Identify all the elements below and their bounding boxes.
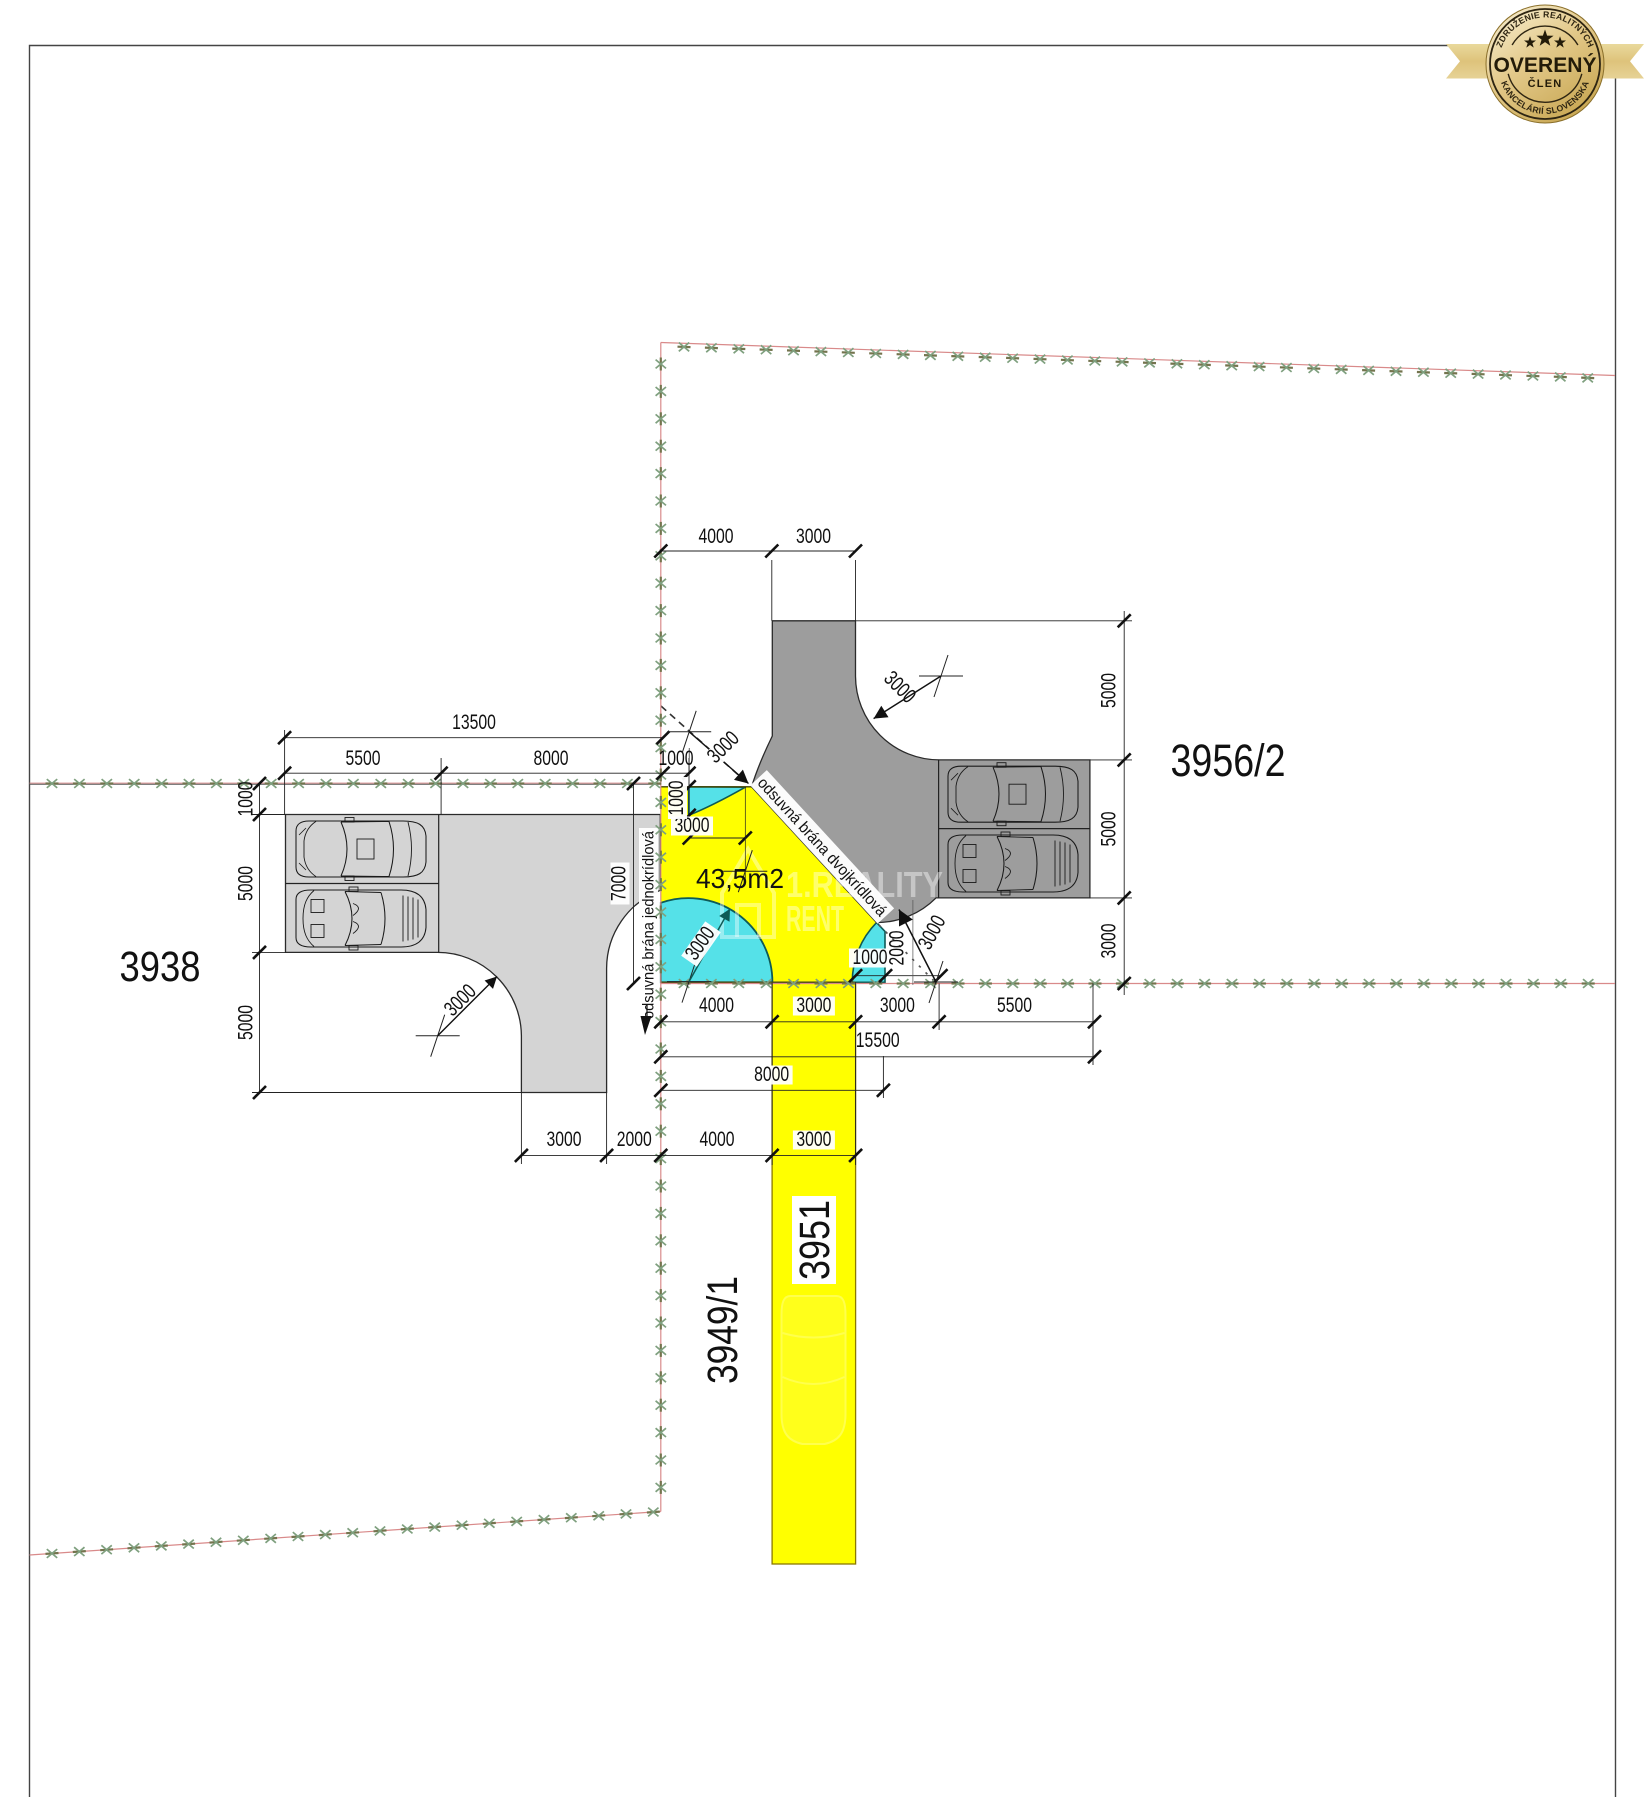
svg-text:4000: 4000 xyxy=(700,1128,735,1151)
svg-text:1000: 1000 xyxy=(659,747,694,770)
svg-text:5000: 5000 xyxy=(1098,673,1121,708)
svg-text:odsuvná brána jednokrídlová: odsuvná brána jednokrídlová xyxy=(641,831,658,1019)
svg-text:3000: 3000 xyxy=(1098,924,1121,959)
svg-text:1000: 1000 xyxy=(853,946,888,969)
svg-text:3000: 3000 xyxy=(440,980,481,1021)
svg-text:3000: 3000 xyxy=(879,667,920,708)
svg-text:3000: 3000 xyxy=(880,994,915,1017)
svg-text:2000: 2000 xyxy=(886,931,909,966)
svg-text:4000: 4000 xyxy=(699,525,734,548)
svg-text:OVERENÝ: OVERENÝ xyxy=(1494,52,1597,77)
svg-text:1000: 1000 xyxy=(235,782,258,817)
svg-text:3000: 3000 xyxy=(796,1128,831,1151)
svg-text:5000: 5000 xyxy=(235,866,258,901)
svg-text:15500: 15500 xyxy=(856,1029,900,1052)
svg-text:3000: 3000 xyxy=(547,1128,582,1151)
svg-text:5500: 5500 xyxy=(997,994,1032,1017)
svg-text:3000: 3000 xyxy=(796,525,831,548)
svg-text:7000: 7000 xyxy=(608,866,631,901)
svg-text:8000: 8000 xyxy=(754,1063,789,1086)
svg-text:8000: 8000 xyxy=(534,747,569,770)
svg-text:43,5m2: 43,5m2 xyxy=(696,863,784,894)
svg-text:3956/2: 3956/2 xyxy=(1171,735,1286,786)
svg-text:RENT: RENT xyxy=(786,898,844,939)
svg-text:13500: 13500 xyxy=(452,711,496,734)
svg-text:3949/1: 3949/1 xyxy=(699,1276,747,1384)
svg-text:5000: 5000 xyxy=(1098,812,1121,847)
svg-text:5000: 5000 xyxy=(235,1005,258,1040)
svg-text:1000: 1000 xyxy=(665,781,688,816)
svg-text:3000: 3000 xyxy=(796,994,831,1017)
svg-text:3000: 3000 xyxy=(914,912,951,954)
svg-text:4000: 4000 xyxy=(699,994,734,1017)
svg-text:2000: 2000 xyxy=(617,1128,652,1151)
svg-text:3951: 3951 xyxy=(791,1200,839,1280)
svg-text:ČLEN: ČLEN xyxy=(1528,77,1563,90)
svg-text:3938: 3938 xyxy=(120,943,201,991)
svg-text:5500: 5500 xyxy=(346,747,381,770)
